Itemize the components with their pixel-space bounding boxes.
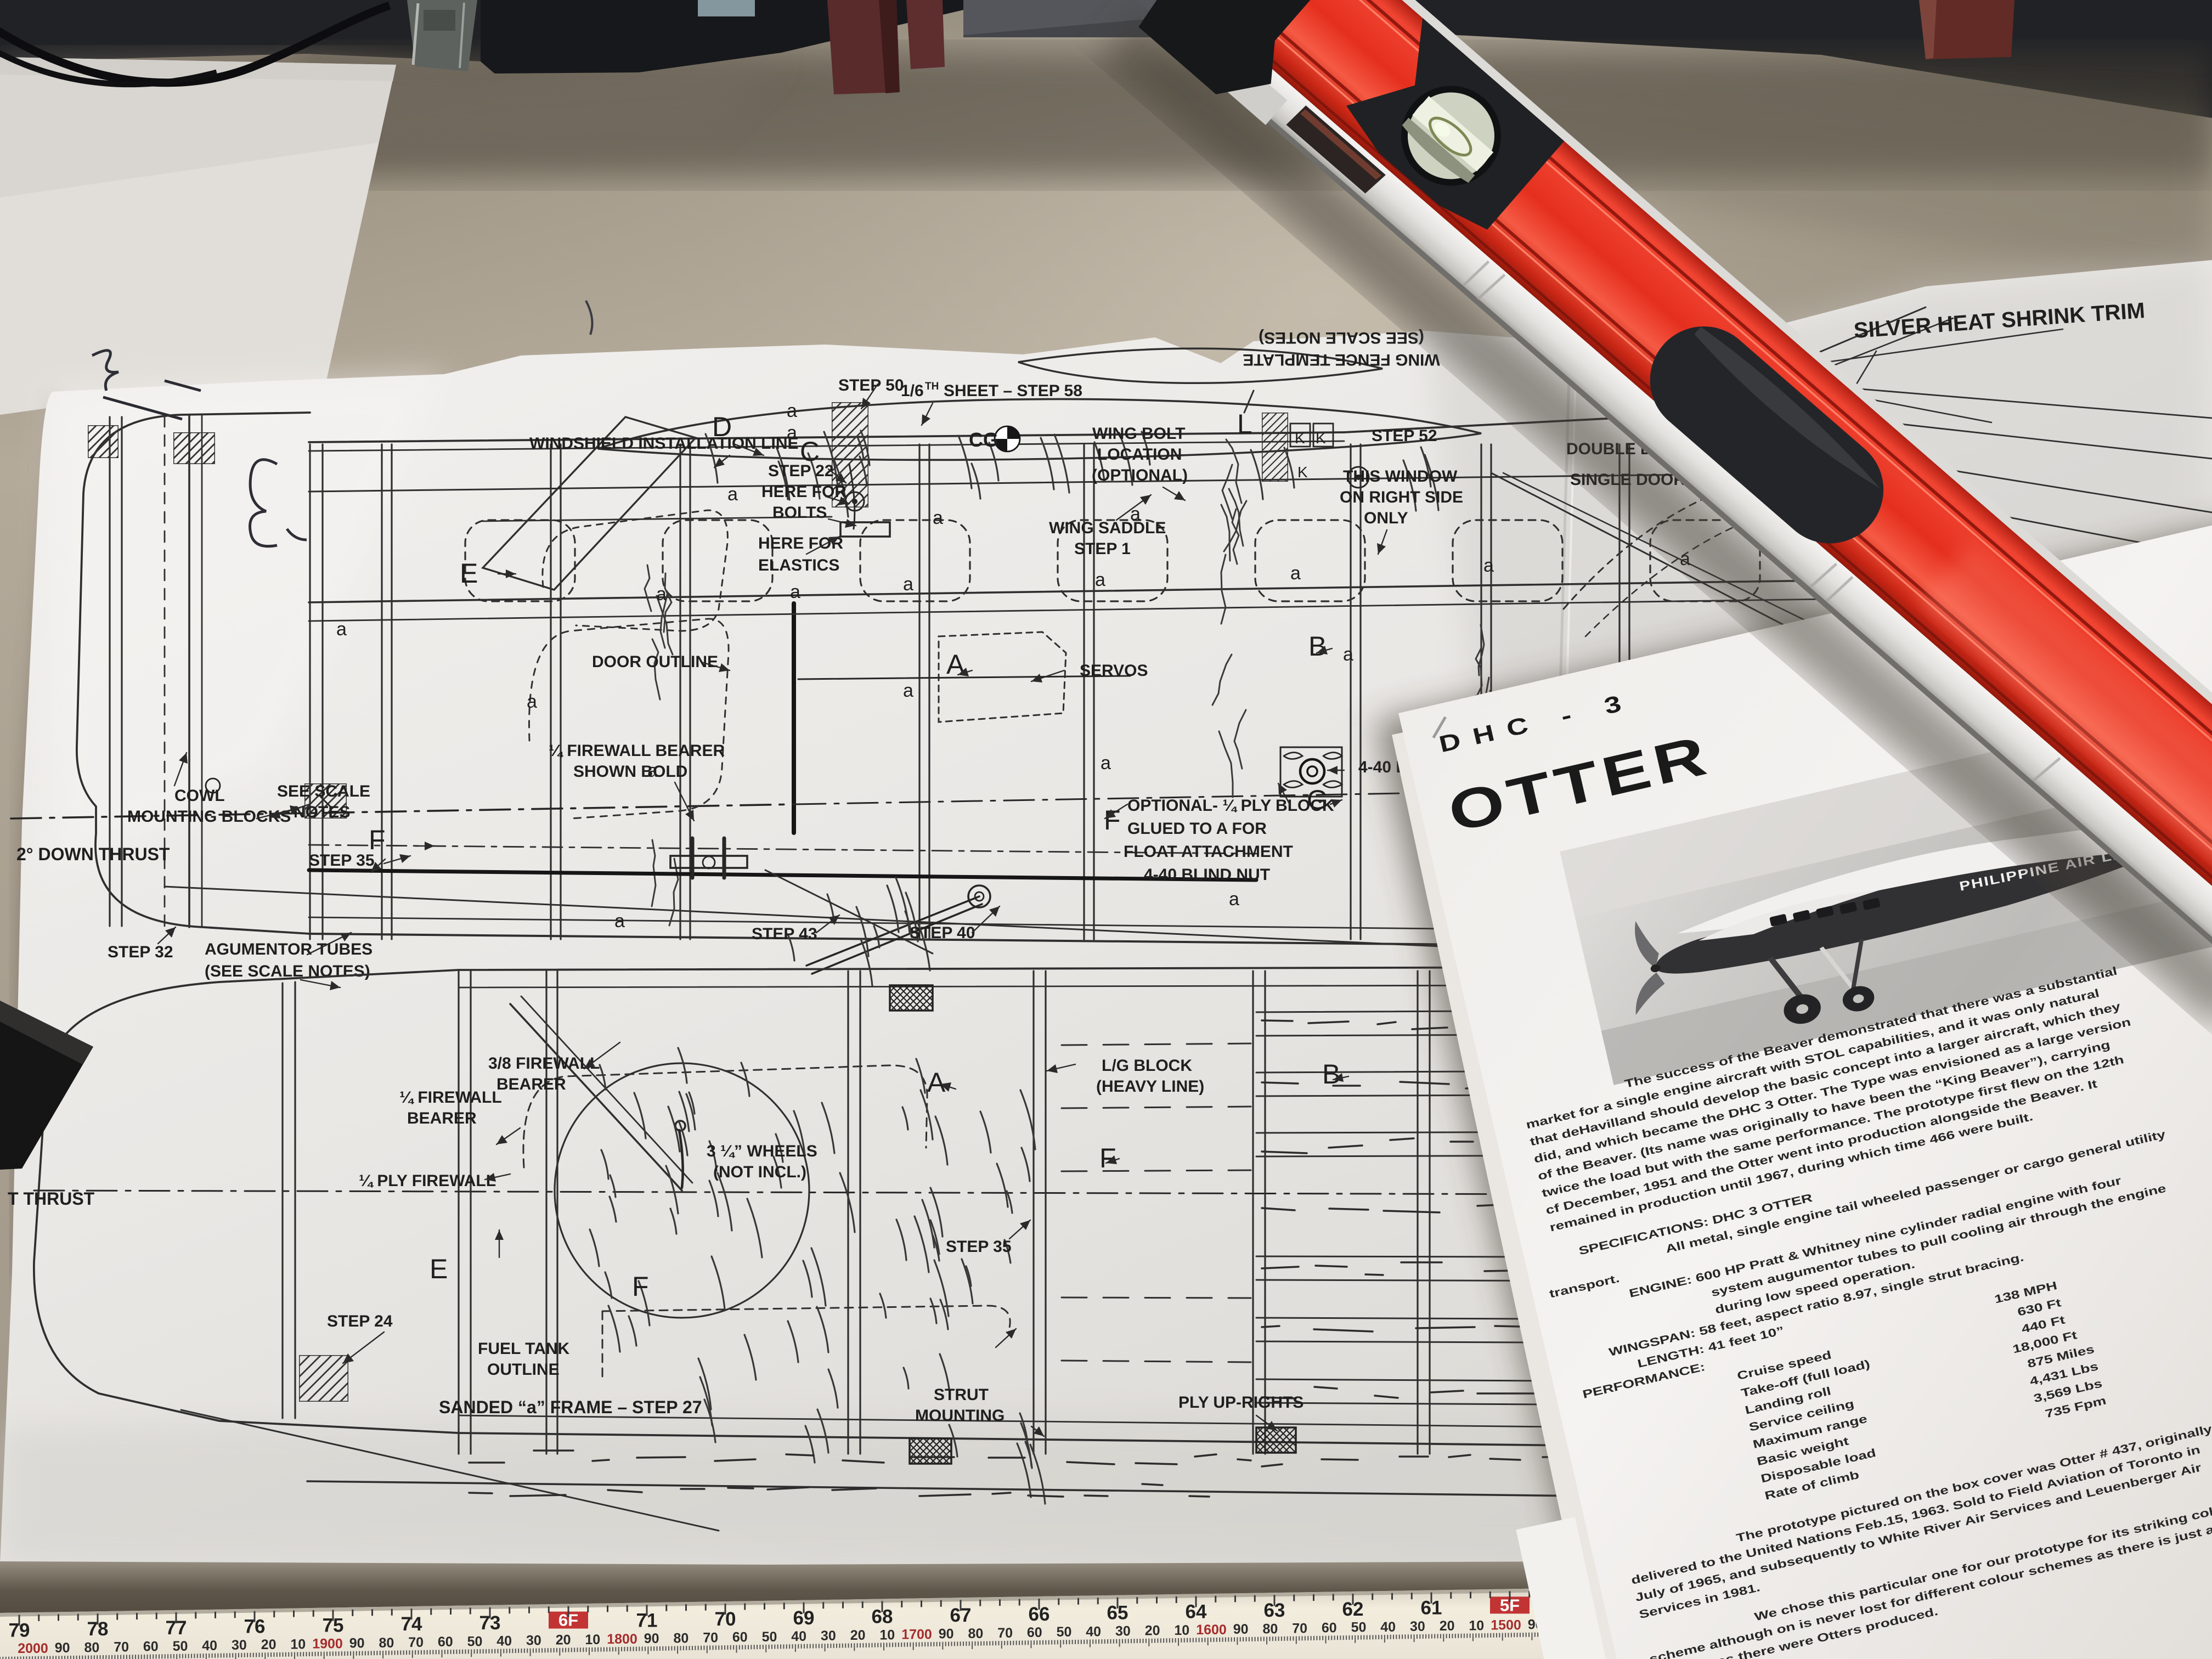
svg-text:50: 50	[467, 1634, 483, 1649]
svg-text:20: 20	[1145, 1623, 1160, 1639]
svg-text:GLUED TO A FOR: GLUED TO A FOR	[1127, 820, 1267, 838]
svg-text:60: 60	[143, 1639, 159, 1655]
svg-text:F: F	[632, 1271, 649, 1302]
svg-text:a: a	[1229, 889, 1239, 910]
svg-text:SANDED “a” FRAME – STEP 27: SANDED “a” FRAME – STEP 27	[439, 1397, 702, 1417]
svg-text:90: 90	[349, 1636, 365, 1651]
svg-text:70: 70	[1292, 1621, 1307, 1636]
svg-text:a: a	[336, 619, 347, 640]
svg-text:BEARER: BEARER	[496, 1075, 566, 1093]
svg-text:SHOWN BOLD: SHOWN BOLD	[573, 763, 687, 781]
svg-text:a: a	[727, 484, 738, 505]
svg-text:70: 70	[997, 1626, 1013, 1641]
svg-text:L: L	[1237, 409, 1252, 439]
svg-text:80: 80	[1262, 1621, 1278, 1637]
svg-text:50: 50	[1351, 1620, 1367, 1635]
svg-text:2° DOWN THRUST: 2° DOWN THRUST	[16, 844, 170, 864]
svg-text:ON RIGHT SIDE: ON RIGHT SIDE	[1340, 488, 1463, 506]
svg-text:FUEL TANK: FUEL TANK	[478, 1340, 570, 1358]
svg-text:¼ FIREWALL BEARER: ¼ FIREWALL BEARER	[549, 742, 725, 760]
svg-text:SHEET – STEP 58: SHEET – STEP 58	[944, 382, 1082, 400]
svg-text:60: 60	[1027, 1625, 1042, 1640]
svg-text:30: 30	[526, 1633, 541, 1649]
svg-text:STEP 40: STEP 40	[910, 924, 975, 942]
svg-text:(SEE SCALE NOTES): (SEE SCALE NOTES)	[1259, 329, 1424, 347]
svg-text:B: B	[1322, 1059, 1340, 1090]
svg-text:¼ PLY FIREWALL: ¼ PLY FIREWALL	[359, 1172, 496, 1190]
svg-text:80: 80	[968, 1626, 983, 1641]
svg-text:a: a	[647, 760, 658, 781]
svg-text:30: 30	[821, 1628, 836, 1644]
svg-text:K: K	[1297, 464, 1308, 481]
svg-text:90: 90	[1233, 1622, 1249, 1637]
svg-text:60: 60	[732, 1630, 748, 1645]
svg-text:40: 40	[1086, 1624, 1101, 1639]
svg-text:ELASTICS: ELASTICS	[758, 556, 839, 574]
svg-text:STEP 24: STEP 24	[327, 1312, 393, 1330]
svg-text:B: B	[1308, 631, 1327, 662]
svg-text:STEP 1: STEP 1	[1074, 540, 1131, 558]
svg-text:LOCATION: LOCATION	[1097, 445, 1182, 464]
svg-text:CG: CG	[969, 428, 998, 451]
svg-text:10: 10	[1469, 1618, 1484, 1633]
svg-text:TH: TH	[925, 381, 939, 392]
svg-text:COWL: COWL	[174, 787, 225, 805]
svg-text:20: 20	[556, 1633, 571, 1648]
svg-text:BEARER: BEARER	[407, 1109, 477, 1127]
svg-text:90: 90	[55, 1640, 70, 1656]
svg-text:STEP 52: STEP 52	[1372, 427, 1437, 445]
svg-text:STEP 32: STEP 32	[108, 943, 173, 961]
svg-text:a: a	[1483, 555, 1494, 576]
svg-text:WING SADDLE: WING SADDLE	[1049, 519, 1166, 537]
svg-text:80: 80	[84, 1640, 99, 1655]
svg-text:60: 60	[438, 1634, 453, 1650]
svg-text:DOOR OUTLINE: DOOR OUTLINE	[592, 653, 718, 671]
svg-text:50: 50	[1057, 1624, 1072, 1640]
svg-text:THIS WINDOW: THIS WINDOW	[1343, 467, 1458, 486]
svg-text:40: 40	[496, 1633, 512, 1649]
svg-text:WING BOLT: WING BOLT	[1092, 425, 1185, 443]
svg-text:40: 40	[1380, 1620, 1396, 1635]
svg-text:a: a	[787, 422, 797, 443]
svg-text:(HEAVY LINE): (HEAVY LINE)	[1096, 1077, 1204, 1096]
svg-text:3 ¼” WHEELS: 3 ¼” WHEELS	[707, 1142, 817, 1160]
svg-text:BOLTS: BOLTS	[772, 504, 827, 522]
svg-text:OUTLINE: OUTLINE	[487, 1361, 560, 1379]
svg-text:a: a	[656, 584, 667, 605]
svg-text:10: 10	[290, 1637, 306, 1652]
svg-text:a: a	[1290, 563, 1301, 584]
svg-text:T THRUST: T THRUST	[8, 1189, 95, 1209]
svg-text:STEP 22: STEP 22	[768, 462, 834, 480]
svg-text:70: 70	[408, 1635, 424, 1650]
svg-text:20: 20	[261, 1637, 276, 1652]
svg-text:OPTIONAL- ¼ PLY BLOCK: OPTIONAL- ¼ PLY BLOCK	[1127, 797, 1334, 815]
svg-text:a: a	[933, 507, 943, 528]
svg-text:1700: 1700	[901, 1627, 932, 1642]
svg-text:50: 50	[173, 1639, 188, 1654]
svg-text:4-40 BLIND NUT: 4-40 BLIND NUT	[1144, 866, 1270, 884]
svg-text:10: 10	[585, 1632, 600, 1647]
svg-text:70: 70	[114, 1639, 129, 1655]
svg-text:E: E	[460, 558, 478, 589]
svg-text:a: a	[903, 680, 913, 701]
svg-text:90: 90	[644, 1631, 659, 1646]
svg-text:a: a	[527, 691, 537, 712]
svg-text:PLY UP-RIGHTS: PLY UP-RIGHTS	[1178, 1393, 1304, 1412]
svg-text:2000: 2000	[18, 1641, 48, 1656]
svg-text:20: 20	[850, 1628, 866, 1643]
svg-text:a: a	[1095, 569, 1105, 590]
svg-text:STEP 50: STEP 50	[838, 376, 904, 394]
svg-text:30: 30	[1410, 1619, 1425, 1634]
svg-text:1900: 1900	[312, 1637, 343, 1652]
svg-text:30: 30	[232, 1638, 247, 1653]
svg-text:SERVOS: SERVOS	[1080, 662, 1148, 680]
svg-text:40: 40	[791, 1629, 806, 1644]
svg-text:STEP 43: STEP 43	[752, 925, 817, 943]
svg-text:AGUMENTOR TUBES: AGUMENTOR TUBES	[205, 940, 373, 958]
svg-text:1600: 1600	[1196, 1622, 1227, 1638]
svg-text:E: E	[430, 1254, 448, 1284]
svg-text:ONLY: ONLY	[1364, 509, 1408, 527]
svg-text:a: a	[1343, 644, 1353, 665]
svg-text:20: 20	[1440, 1618, 1455, 1634]
svg-text:STRUT: STRUT	[934, 1386, 989, 1404]
svg-text:(OPTIONAL): (OPTIONAL)	[1092, 466, 1188, 484]
svg-text:¼ FIREWALL: ¼ FIREWALL	[399, 1088, 502, 1107]
svg-text:L/G BLOCK: L/G BLOCK	[1102, 1057, 1192, 1075]
svg-text:a: a	[903, 574, 913, 595]
svg-text:MOUNTING: MOUNTING	[915, 1407, 1005, 1425]
svg-text:1/6: 1/6	[901, 382, 924, 400]
svg-text:10: 10	[879, 1627, 895, 1643]
svg-text:1800: 1800	[607, 1632, 637, 1647]
svg-text:80: 80	[673, 1630, 689, 1646]
svg-text:D: D	[712, 411, 732, 442]
svg-text:a: a	[787, 400, 797, 421]
svg-text:a: a	[614, 911, 625, 932]
svg-text:80: 80	[379, 1635, 394, 1651]
svg-text:10: 10	[1174, 1623, 1189, 1638]
svg-text:50: 50	[762, 1629, 777, 1645]
svg-text:1500: 1500	[1491, 1617, 1521, 1633]
svg-text:3/8 FIREWALL: 3/8 FIREWALL	[488, 1054, 600, 1073]
svg-text:(NOT INCL.): (NOT INCL.)	[713, 1163, 806, 1181]
svg-text:K: K	[1295, 430, 1305, 447]
svg-text:40: 40	[202, 1638, 217, 1654]
svg-text:HERE FOR: HERE FOR	[761, 483, 847, 501]
svg-text:a: a	[790, 582, 800, 602]
svg-text:K: K	[1316, 430, 1326, 447]
svg-text:STEP 35: STEP 35	[946, 1238, 1012, 1256]
svg-text:FLOAT ATTACHMENT: FLOAT ATTACHMENT	[1124, 843, 1293, 861]
svg-text:F: F	[369, 825, 386, 855]
svg-text:NOTES: NOTES	[294, 803, 350, 821]
svg-text:90: 90	[939, 1627, 954, 1642]
svg-text:A: A	[927, 1067, 946, 1098]
svg-text:70: 70	[703, 1630, 718, 1645]
svg-text:a: a	[1101, 753, 1111, 774]
svg-text:WING FENCE TEMPLATE: WING FENCE TEMPLATE	[1243, 351, 1440, 369]
svg-text:SEE SCALE: SEE SCALE	[277, 782, 370, 800]
svg-text:30: 30	[1115, 1624, 1131, 1639]
svg-text:STEP 35: STEP 35	[309, 851, 375, 870]
svg-text:60: 60	[1322, 1621, 1337, 1636]
